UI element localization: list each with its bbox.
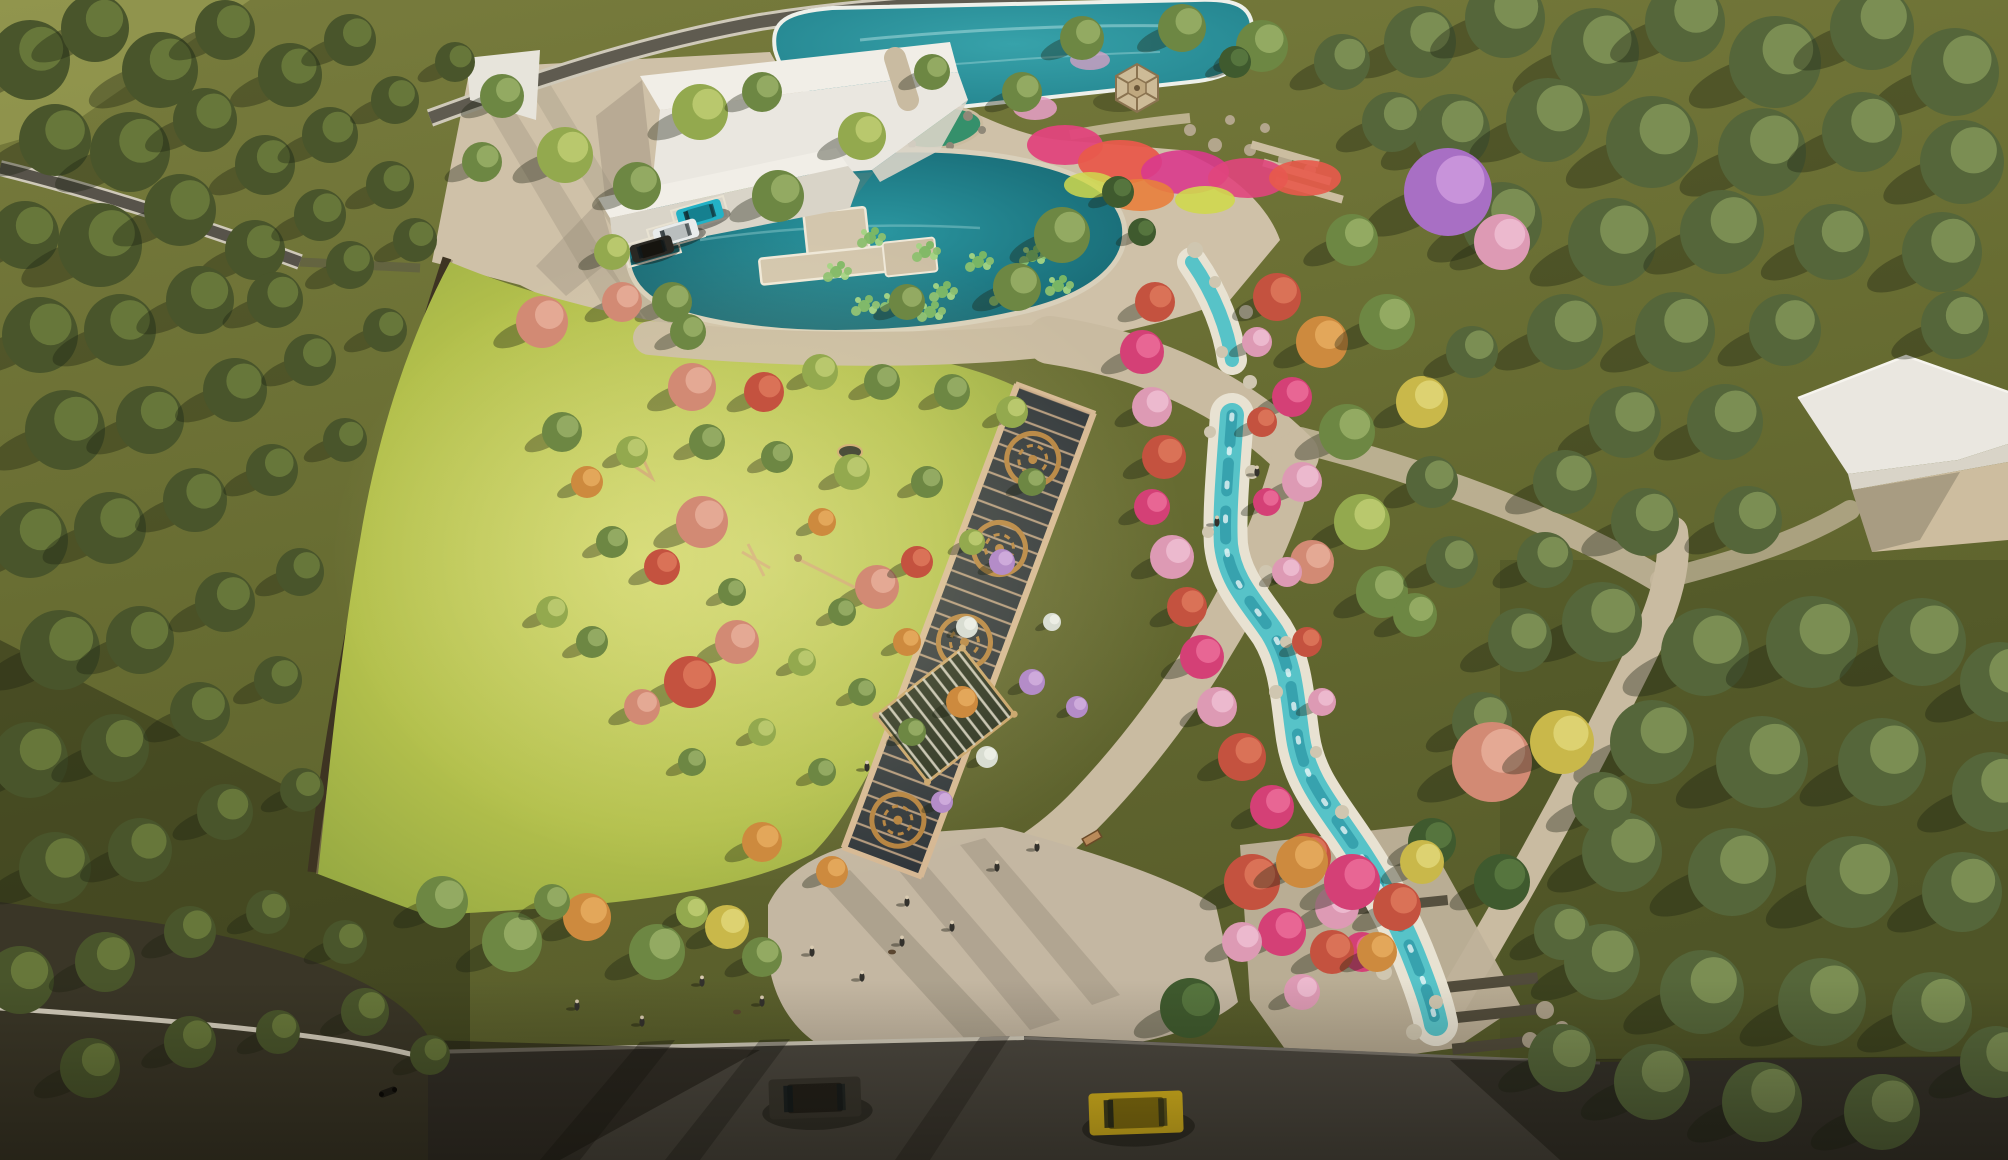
park-scene-canvas	[0, 0, 2008, 1160]
pavilion-finial	[1134, 85, 1140, 91]
bottom-vignette	[0, 980, 2008, 1160]
sun-glow	[330, 230, 1190, 890]
park-aerial-rendering	[0, 0, 2008, 1160]
